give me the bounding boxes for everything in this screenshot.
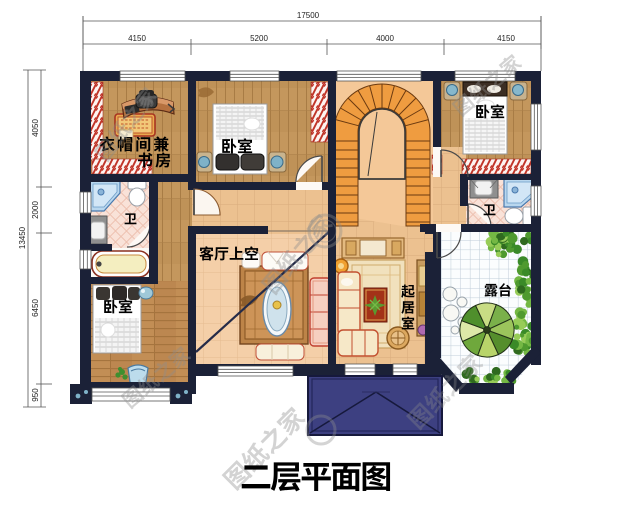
svg-text:2000: 2000 <box>31 201 40 219</box>
svg-text:4150: 4150 <box>497 34 515 43</box>
svg-text:950: 950 <box>31 388 40 402</box>
svg-text:4050: 4050 <box>31 119 40 137</box>
svg-text:13450: 13450 <box>18 226 27 249</box>
svg-text:5200: 5200 <box>250 34 268 43</box>
svg-text:4000: 4000 <box>376 34 394 43</box>
svg-text:4150: 4150 <box>128 34 146 43</box>
svg-text:6450: 6450 <box>31 299 40 317</box>
svg-text:17500: 17500 <box>297 11 320 20</box>
